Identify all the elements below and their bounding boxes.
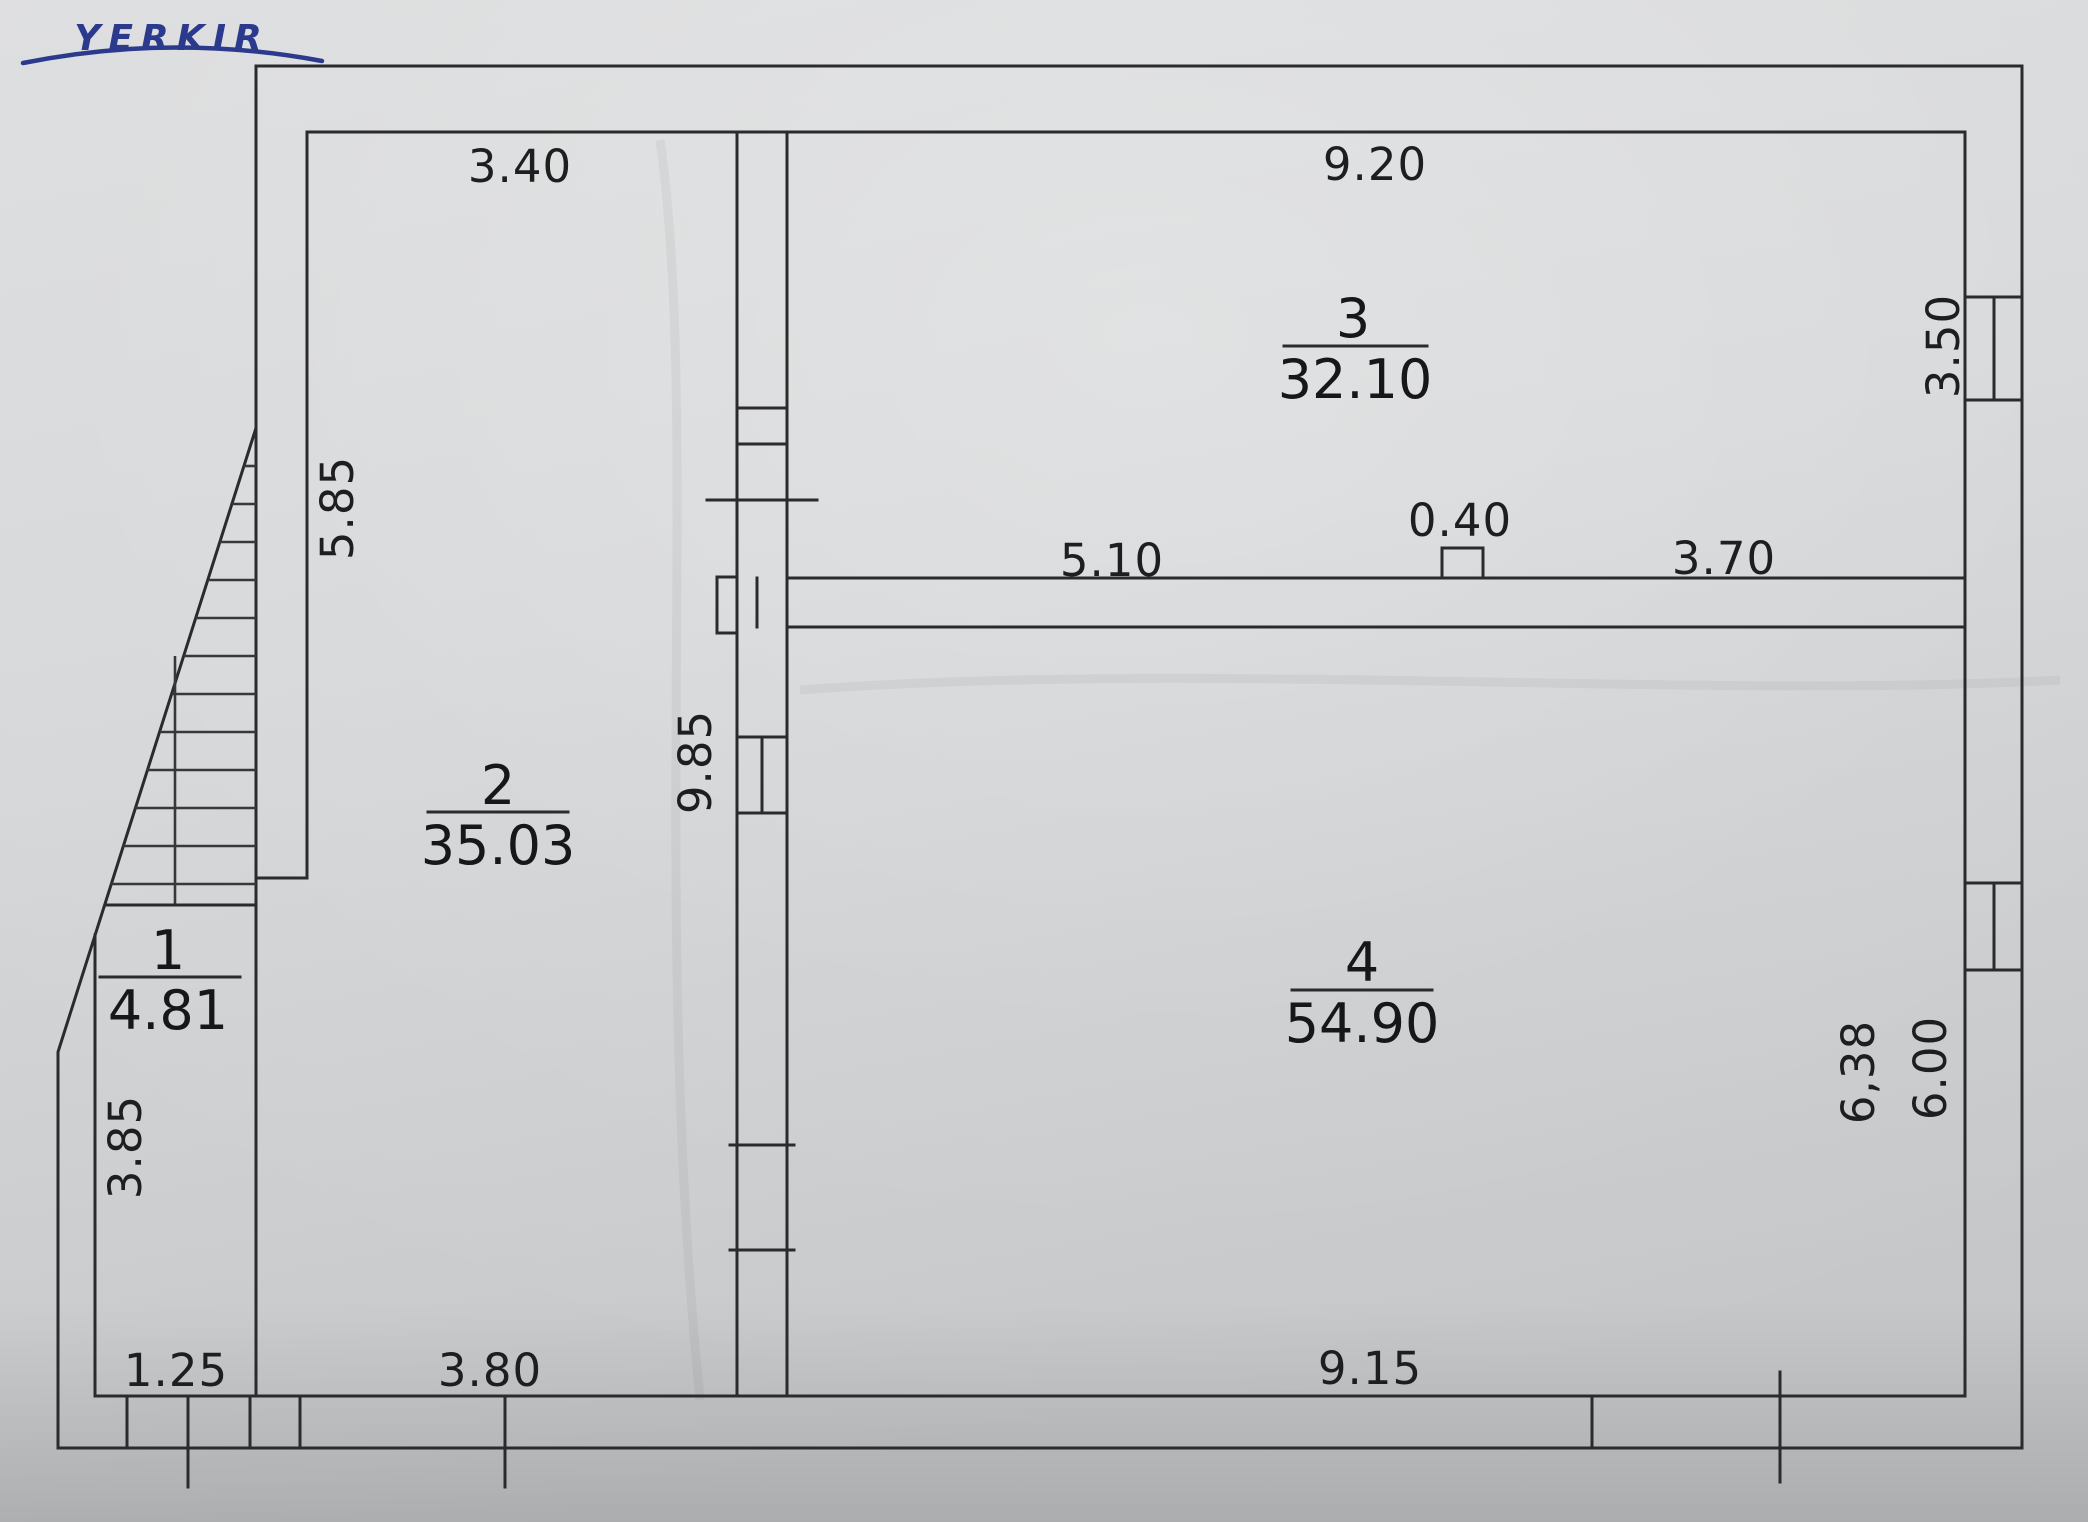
paper-sheen — [0, 0, 2088, 1522]
dim-room3-bottom-left: 5.10 — [1060, 534, 1164, 587]
paper-bottom-shadow — [0, 1300, 2088, 1522]
dim-room3-bottom-right: 3.70 — [1672, 532, 1776, 585]
dim-room1-bottom: 1.25 — [124, 1344, 228, 1397]
dim-room2-bottom: 3.80 — [438, 1344, 542, 1397]
dim-room4-bottom: 9.15 — [1318, 1342, 1422, 1395]
dim-notch: 0.40 — [1408, 494, 1512, 547]
room-4-area: 54.90 — [1285, 992, 1440, 1055]
room-2-number: 2 — [481, 754, 515, 817]
dim-room3-top: 9.20 — [1323, 138, 1427, 191]
floor-plan-svg: YERKIR — [0, 0, 2088, 1522]
dim-room2-left: 5.85 — [311, 456, 364, 560]
dim-room3-window: 3.50 — [1917, 294, 1970, 398]
dim-center-wall: 9.85 — [669, 710, 722, 814]
room-2-area: 35.03 — [421, 814, 576, 877]
room-1-number: 1 — [151, 919, 185, 982]
room-3-number: 3 — [1336, 287, 1370, 350]
dim-room2-top: 3.40 — [468, 140, 572, 193]
room-1-area: 4.81 — [108, 979, 228, 1042]
floor-plan-scan: YERKIR — [0, 0, 2088, 1522]
dim-room4-right-inner: 6.00 — [1904, 1016, 1957, 1120]
dim-room4-right-outer: 6,38 — [1832, 1020, 1885, 1124]
dim-room1-left: 3.85 — [99, 1095, 152, 1199]
room-4-number: 4 — [1345, 931, 1379, 994]
room-3-area: 32.10 — [1278, 348, 1433, 411]
